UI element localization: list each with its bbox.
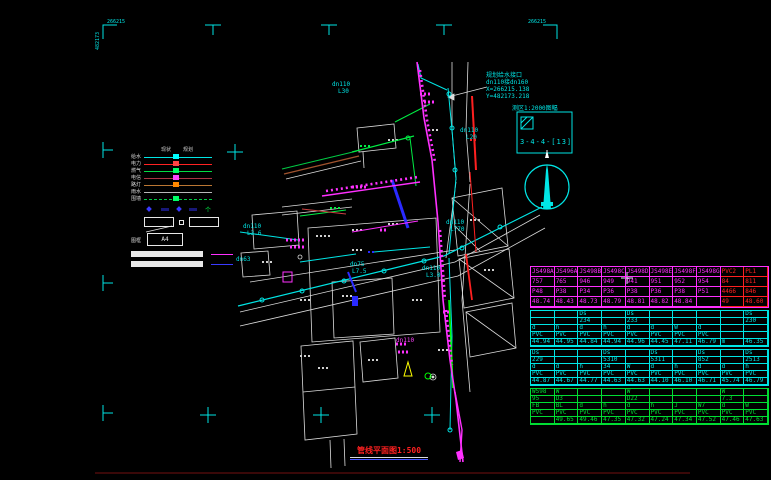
legend-row: 路灯: [131, 182, 237, 189]
table-cell: d: [578, 403, 602, 410]
table-cell: PVC: [650, 410, 674, 417]
table-row: 44.8744.6744.7744.6344.6344.1046.1046.71…: [531, 378, 768, 385]
legend-row-marker: [173, 154, 179, 159]
table-cell: 47.35: [602, 417, 626, 424]
junction-annotation: 规划给水接口dn110接dn160X=266215.138Y=482173.21…: [486, 72, 529, 100]
table-cell: 44.67: [555, 378, 579, 385]
table-cell: JS496A: [555, 267, 579, 277]
table-cell: h: [602, 403, 626, 410]
table-row: 75776594694994195195295484811: [531, 277, 768, 287]
table-cell: PL1: [744, 267, 768, 277]
legend-row-label: 燃气: [131, 168, 141, 175]
table-cell: 48.73: [578, 297, 602, 307]
title-underline: [350, 457, 428, 458]
existing-road-symbol: [189, 217, 219, 227]
table-cell: PVC: [626, 410, 650, 417]
table-cell: 48.74: [531, 297, 555, 307]
table-cell: PVC: [744, 410, 768, 417]
table-cell: P36: [602, 287, 626, 297]
pipe-size-label: L3.6: [247, 231, 261, 237]
legend-row-label: 雨水: [131, 189, 141, 196]
table-cell: [578, 396, 602, 403]
magenta-sample-line: [211, 254, 233, 255]
table-cell: [650, 311, 674, 318]
table-cell: 44.84: [578, 339, 602, 346]
yellow-triangle-marker: [404, 362, 412, 376]
table-cell: 941: [626, 277, 650, 287]
table-row: WS98WWW: [531, 389, 768, 396]
fence-line-brown: [284, 156, 359, 174]
table-cell: PVC: [578, 410, 602, 417]
table-cell: 48.82: [650, 297, 674, 307]
scale-bar: [131, 261, 203, 267]
table-cell: 48.84: [673, 297, 697, 307]
table-cell: 47.63: [744, 417, 768, 424]
valve-symbol: [176, 206, 182, 212]
legend-header-planned: 规划: [183, 146, 193, 153]
table-cell: 49.65: [555, 417, 579, 424]
legend-header-existing: 现状: [161, 146, 171, 153]
table-cell: [744, 389, 768, 396]
corner-coordinate-label: 266215: [107, 19, 125, 25]
legend-row-line: [144, 192, 212, 193]
table-cell: [531, 318, 555, 325]
table-cell: [673, 350, 697, 357]
legend-row-marker: [173, 182, 179, 187]
table-cell: [744, 396, 768, 403]
table-cell: d: [531, 364, 555, 371]
table-row: 234233230: [531, 318, 768, 325]
table-cell: 951: [650, 277, 674, 287]
table-cell: P48: [531, 287, 555, 297]
table-cell: [626, 357, 650, 364]
legend-row: 围墙: [131, 196, 237, 203]
table-cell: 44.87: [531, 378, 555, 385]
table-cell: PVC: [602, 410, 626, 417]
table-cell: Ds: [697, 350, 721, 357]
table-cell: [673, 389, 697, 396]
table-cell: PVC: [650, 371, 674, 378]
table-cell: 49: [721, 297, 745, 307]
table-cell: d: [697, 325, 721, 332]
table-cell: h: [673, 364, 697, 371]
table-cell: PVC: [673, 371, 697, 378]
table-cell: [555, 311, 579, 318]
table-cell: P38: [626, 287, 650, 297]
table-cell: PVC: [721, 410, 745, 417]
table-row: 95D3D227.3: [531, 396, 768, 403]
table-row: 49.6549.4647.3547.3247.2447.3447.5247.46…: [531, 417, 768, 424]
table-band: WS98WWW95D3D227.3FBBLdhdhJW7dWPVCPVCPVCP…: [530, 388, 769, 425]
table-cell: [602, 318, 626, 325]
table-cell: PVC: [673, 332, 697, 339]
table-cell: [697, 297, 721, 307]
table-cell: [697, 318, 721, 325]
pipe-size-label: L30: [338, 89, 349, 95]
table-cell: [721, 350, 745, 357]
table-cell: 47.52: [697, 417, 721, 424]
table-cell: PVC: [697, 332, 721, 339]
table-cell: d: [555, 364, 579, 371]
table-cell: 949: [602, 277, 626, 287]
table-cell: 46.10: [673, 378, 697, 385]
index-box-label: 3-4-4-[13]: [520, 138, 572, 146]
table-row: 48.7448.4348.7348.7948.8148.8248.844948.…: [531, 297, 768, 307]
table-cell: d: [626, 403, 650, 410]
table-cell: PVC: [697, 371, 721, 378]
table-cell: 47.46: [721, 417, 745, 424]
table-row: DsDsDsDsDs: [531, 350, 768, 357]
table-cell: [578, 389, 602, 396]
table-cell: W7: [697, 403, 721, 410]
table-cell: 46.71: [697, 378, 721, 385]
legend-symbol-row: 个: [131, 205, 237, 213]
table-cell: PVC: [744, 371, 768, 378]
table-cell: 7.3: [721, 396, 745, 403]
table-cell: PVC: [673, 410, 697, 417]
table-row: PVCPVCPVCPVCPVCPVCPVCPVCPVCPVC: [531, 410, 768, 417]
legend-row-marker: [173, 168, 179, 173]
table-cell: [602, 396, 626, 403]
table-cell: m: [721, 339, 745, 346]
table-row: FBBLdhdhJW7dW: [531, 403, 768, 410]
table-row: PVCPVCPVCPVCPVCPVCPVCPVCPVCPVC: [531, 371, 768, 378]
hydrant-symbol: [161, 208, 169, 211]
table-cell: 2513: [744, 357, 768, 364]
table-cell: P51: [697, 287, 721, 297]
table-cell: [673, 311, 697, 318]
title-underline: [350, 459, 428, 460]
table-cell: [721, 318, 745, 325]
table-cell: 952: [673, 277, 697, 287]
table-cell: JS498E: [650, 267, 674, 277]
table-cell: 46.79: [744, 378, 768, 385]
table-cell: [721, 332, 745, 339]
table-cell: W: [626, 364, 650, 371]
table-cell: PVC: [531, 371, 555, 378]
table-cell: 230: [744, 318, 768, 325]
table-cell: FB: [531, 403, 555, 410]
north-arrow-icon: [525, 150, 569, 209]
table-cell: 46.79: [697, 339, 721, 346]
valve-symbol: [146, 206, 152, 212]
table-cell: [626, 350, 650, 357]
annotation-line: 规划给水接口: [486, 72, 529, 79]
table-cell: 44.10: [650, 378, 674, 385]
legend-row-marker: [173, 175, 179, 180]
table-cell: 84: [721, 277, 745, 287]
table-cell: [531, 311, 555, 318]
sheet-title: 管线平面图1:500: [350, 445, 428, 456]
table-cell: 5311: [650, 357, 674, 364]
pipe-size-label: L770: [450, 227, 464, 233]
table-cell: [578, 357, 602, 364]
small-square-symbol: [179, 220, 184, 225]
table-cell: D22: [626, 396, 650, 403]
table-row: 229531053118522513: [531, 357, 768, 364]
table-cell: d: [650, 364, 674, 371]
legend-row-marker: [173, 196, 179, 201]
table-cell: [673, 357, 697, 364]
table-cell: PVC: [555, 332, 579, 339]
table-cell: PVC: [531, 410, 555, 417]
table-cell: [650, 389, 674, 396]
table-cell: P38: [673, 287, 697, 297]
legend-row-label: 围墙: [131, 196, 141, 203]
table-cell: P36: [650, 287, 674, 297]
table-cell: 49.46: [578, 417, 602, 424]
table-cell: 811: [744, 277, 768, 287]
table-cell: 852: [697, 357, 721, 364]
table-cell: [721, 311, 745, 318]
pipe-survey-table: JS498AJS496AJS498BJS498CJS498DJS498EJS49…: [530, 266, 769, 427]
frame-label: 图框: [131, 237, 141, 244]
table-cell: 4466: [721, 287, 745, 297]
table-cell: Ds: [531, 350, 555, 357]
table-cell: d: [721, 364, 745, 371]
table-cell: PVC: [697, 410, 721, 417]
table-cell: W: [721, 389, 745, 396]
table-cell: 229: [531, 357, 555, 364]
table-cell: Ds: [626, 311, 650, 318]
table-cell: [578, 350, 602, 357]
pipe-size-label: L3.0: [426, 273, 440, 279]
table-cell: [602, 311, 626, 318]
table-cell: [697, 389, 721, 396]
legend-row-label: 给水: [131, 154, 141, 161]
legend-symbol-glyph: 个: [205, 205, 211, 214]
table-cell: 46.35: [744, 339, 768, 346]
table-cell: [697, 311, 721, 318]
table-cell: [721, 325, 745, 332]
table-cell: 44.63: [626, 378, 650, 385]
table-cell: 34: [602, 364, 626, 371]
table-cell: 5310: [602, 357, 626, 364]
table-cell: 44.95: [555, 339, 579, 346]
sheet-title-block: 管线平面图1:500: [350, 445, 428, 460]
table-row: PVCPVCPVCPVCPVCPVCPVCPVC: [531, 332, 768, 339]
legend-header: 现状 规划: [131, 146, 237, 154]
table-cell: 846: [744, 287, 768, 297]
table-cell: [744, 332, 768, 339]
table-cell: 48.60: [744, 297, 768, 307]
table-cell: 946: [578, 277, 602, 287]
table-cell: W: [744, 403, 768, 410]
corner-coordinate-label: 266215: [528, 19, 546, 25]
table-cell: PVC: [555, 410, 579, 417]
scale-bar: [131, 251, 203, 257]
table-cell: JS498B: [578, 267, 602, 277]
table-row: ddh34Wdhddh: [531, 364, 768, 371]
table-row: DsDsDs: [531, 311, 768, 318]
table-cell: [650, 318, 674, 325]
table-cell: 47.32: [626, 417, 650, 424]
table-cell: [721, 357, 745, 364]
table-cell: d: [531, 325, 555, 332]
annotation-line: dn110接dn160: [486, 79, 529, 86]
table-cell: d: [721, 403, 745, 410]
legend: 现状 规划 给水电力燃气电信路灯雨水围墙 个 图框 A4: [131, 146, 237, 271]
pipe-size-label: L20: [466, 135, 477, 141]
legend-row: 雨水: [131, 189, 237, 196]
table-cell: [697, 396, 721, 403]
legend-row-label: 电信: [131, 175, 141, 182]
planned-road-symbol: [144, 217, 174, 227]
table-cell: P38: [555, 287, 579, 297]
table-cell: [555, 350, 579, 357]
table-cell: PVC: [531, 332, 555, 339]
table-band: DsDsDs234233230dhdhddWdPVCPVCPVCPVCPVCPV…: [530, 310, 769, 347]
table-cell: 44.94: [531, 339, 555, 346]
new-pipes-magenta: [283, 62, 464, 462]
table-row: JS498AJS496AJS498BJS498CJS498DJS498EJS49…: [531, 267, 768, 277]
hydrant-symbol: [189, 208, 197, 211]
table-cell: 47.24: [650, 417, 674, 424]
legend-scale-bars: [131, 251, 237, 271]
table-cell: PVC: [578, 332, 602, 339]
table-row: P48P38P34P36P38P36P38P514466846: [531, 287, 768, 297]
blue-sample-line: [211, 264, 233, 265]
table-cell: PVC: [721, 371, 745, 378]
legend-row: 燃气: [131, 168, 237, 175]
table-cell: P34: [578, 287, 602, 297]
table-cell: Ds: [650, 350, 674, 357]
corner-coordinate-label: 482173: [95, 32, 101, 50]
table-cell: D3: [555, 396, 579, 403]
table-cell: PVC: [602, 371, 626, 378]
table-cell: d: [626, 325, 650, 332]
table-cell: PVC: [555, 371, 579, 378]
table-cell: Ds: [602, 350, 626, 357]
table-cell: PVC: [626, 371, 650, 378]
table-cell: Ds: [744, 350, 768, 357]
table-cell: h: [578, 364, 602, 371]
table-cell: 234: [578, 318, 602, 325]
table-cell: 954: [697, 277, 721, 287]
table-cell: [673, 318, 697, 325]
table-cell: 757: [531, 277, 555, 287]
table-cell: 48.81: [626, 297, 650, 307]
table-cell: 95: [531, 396, 555, 403]
table-cell: 44.94: [602, 339, 626, 346]
legend-a4-row: 图框 A4: [131, 233, 237, 248]
legend-box-row: [131, 216, 237, 230]
legend-row-label: 电力: [131, 161, 141, 168]
index-box-header: 测区1:2000图幅: [512, 103, 558, 112]
table-cell: [602, 389, 626, 396]
table-cell: h: [650, 403, 674, 410]
table-cell: 48.43: [555, 297, 579, 307]
table-cell: PVC2: [721, 267, 745, 277]
table-band: JS498AJS496AJS498BJS498CJS498DJS498EJS49…: [530, 266, 769, 308]
table-cell: JS498G: [697, 267, 721, 277]
table-cell: 44.63: [602, 378, 626, 385]
pipe-size-label: dn63: [236, 257, 250, 263]
fence-line-green: [282, 151, 357, 169]
map-index-box: [517, 112, 572, 153]
legend-row: 电力: [131, 161, 237, 168]
table-cell: WS98: [531, 389, 555, 396]
table-cell: h: [602, 325, 626, 332]
legend-row: 给水: [131, 154, 237, 161]
annotation-line: X=266215.138: [486, 86, 529, 93]
table-cell: W: [555, 389, 579, 396]
table-cell: h: [555, 325, 579, 332]
pipe-size-label: L7.5: [352, 269, 366, 275]
table-cell: 44.45: [650, 339, 674, 346]
a4-frame-box: A4: [147, 233, 183, 246]
table-cell: PVC: [650, 332, 674, 339]
table-cell: Ds: [578, 311, 602, 318]
table-cell: [531, 417, 555, 424]
table-cell: 48.79: [602, 297, 626, 307]
table-cell: W: [673, 325, 697, 332]
table-cell: PVC: [578, 371, 602, 378]
cad-drawing-canvas: 266215 482173 266215: [0, 0, 771, 480]
table-cell: [650, 396, 674, 403]
table-cell: 233: [626, 318, 650, 325]
table-cell: BL: [555, 403, 579, 410]
table-cell: 44.96: [626, 339, 650, 346]
table-cell: 47.11: [673, 339, 697, 346]
table-cell: d: [650, 325, 674, 332]
table-cell: h: [744, 364, 768, 371]
table-cell: d: [697, 364, 721, 371]
table-cell: 44.77: [578, 378, 602, 385]
table-cell: [744, 325, 768, 332]
table-cell: W: [626, 389, 650, 396]
table-cell: PVC: [626, 332, 650, 339]
table-cell: JS498F: [673, 267, 697, 277]
legend-row-label: 路灯: [131, 182, 141, 189]
table-cell: [673, 396, 697, 403]
table-cell: d: [578, 325, 602, 332]
table-cell: 765: [555, 277, 579, 287]
table-cell: JS498A: [531, 267, 555, 277]
table-cell: JS498C: [602, 267, 626, 277]
buildings-and-roads: [240, 62, 545, 468]
table-cell: 47.34: [673, 417, 697, 424]
table-band: DsDsDsDsDs229531053118522513ddh34WdhddhP…: [530, 349, 769, 386]
table-cell: J: [673, 403, 697, 410]
table-cell: [555, 357, 579, 364]
table-row: dhdhddWd: [531, 325, 768, 332]
legend-row-marker: [173, 161, 179, 166]
table-row: 44.9444.9544.8444.9444.9644.4547.1146.79…: [531, 339, 768, 346]
table-cell: 45.74: [721, 378, 745, 385]
legend-row: 电信: [131, 175, 237, 182]
table-cell: Ds: [744, 311, 768, 318]
annotation-line: Y=482173.218: [486, 93, 529, 100]
table-cell: [555, 318, 579, 325]
telecom-lines-blue: [348, 180, 408, 306]
legend-line-items: 给水电力燃气电信路灯雨水围墙: [131, 154, 237, 203]
pipe-size-label: dn110: [396, 338, 414, 344]
table-cell: PVC: [602, 332, 626, 339]
table-cell: JS498D: [626, 267, 650, 277]
